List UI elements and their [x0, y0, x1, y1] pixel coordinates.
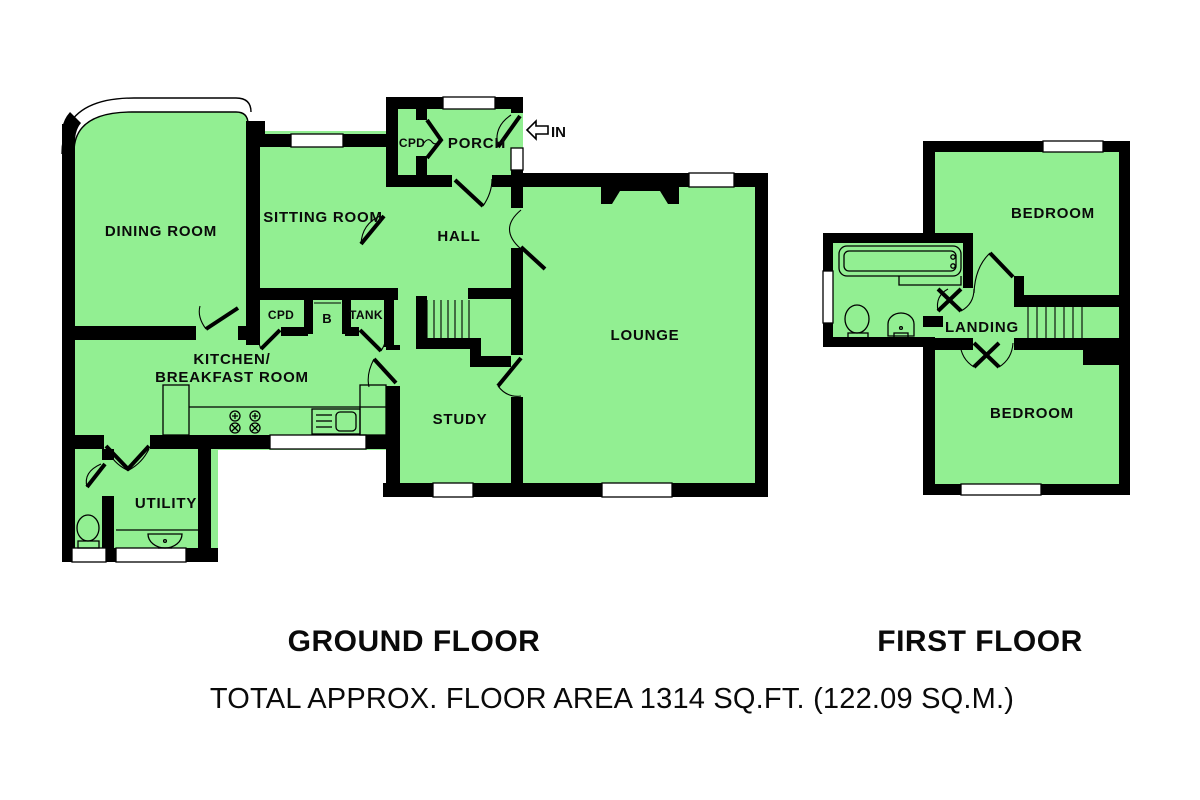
- room-label-kitchen-1: KITCHEN/: [193, 351, 270, 368]
- entry-door-sill: [511, 148, 523, 170]
- ground-floor-caption: GROUND FLOOR: [288, 625, 541, 658]
- room-label-landing: LANDING: [945, 319, 1019, 336]
- window: [291, 134, 343, 147]
- room-label-bedroom-back: BEDROOM: [990, 405, 1074, 422]
- ground-floor-plan: IN DINING ROOM SITTING ROOM CPD PORCH HA…: [62, 97, 768, 562]
- window: [602, 483, 672, 497]
- room-bedrooms-block: [923, 141, 1130, 495]
- window: [72, 548, 106, 562]
- window: [270, 435, 366, 449]
- room-label-bedroom-front: BEDROOM: [1011, 205, 1095, 222]
- entrance-label: IN: [551, 124, 566, 141]
- room-label-tank: TANK: [349, 308, 383, 322]
- fireplace-icon: [612, 191, 668, 204]
- first-floor-plan: BEDROOM LANDING BEDROOM: [823, 141, 1130, 495]
- window: [823, 271, 833, 323]
- room-label-boiler: B: [322, 311, 331, 326]
- window: [433, 483, 473, 497]
- floorplan-page: IN DINING ROOM SITTING ROOM CPD PORCH HA…: [0, 0, 1200, 800]
- first-floor-caption: FIRST FLOOR: [877, 625, 1082, 658]
- window: [689, 173, 734, 187]
- window: [961, 484, 1041, 495]
- total-area-caption: TOTAL APPROX. FLOOR AREA 1314 SQ.FT. (12…: [210, 683, 1014, 715]
- window: [1043, 141, 1103, 152]
- floorplan-svg: IN DINING ROOM SITTING ROOM CPD PORCH HA…: [0, 0, 1200, 800]
- room-label-porch: PORCH: [448, 135, 506, 152]
- room-label-hall: HALL: [437, 228, 480, 245]
- room-label-kitchen-2: BREAKFAST ROOM: [155, 369, 309, 386]
- room-label-porch-cpd: CPD: [399, 136, 425, 150]
- room-label-lounge: LOUNGE: [611, 327, 680, 344]
- window: [443, 97, 495, 109]
- room-label-sitting: SITTING ROOM: [263, 209, 383, 226]
- captions: GROUND FLOOR FIRST FLOOR TOTAL APPROX. F…: [210, 625, 1083, 715]
- window: [116, 548, 186, 562]
- entrance-in-marker: IN: [527, 121, 566, 141]
- room-label-utility: UTILITY: [135, 495, 197, 512]
- room-label-cupboard: CPD: [268, 308, 294, 322]
- room-label-study: STUDY: [433, 411, 488, 428]
- entrance-arrow-icon: [527, 121, 548, 139]
- room-label-dining: DINING ROOM: [105, 223, 217, 240]
